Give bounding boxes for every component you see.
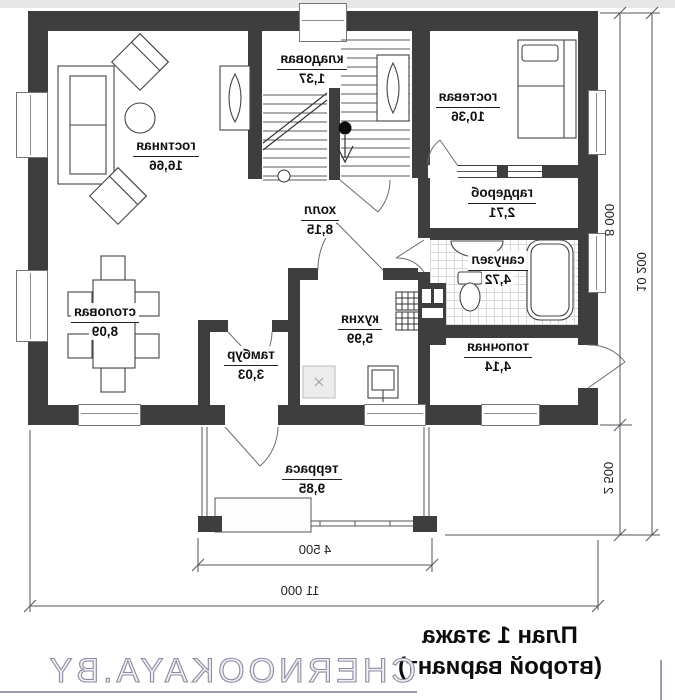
round-table: [125, 103, 155, 133]
room-label-dining-room: столовая 8,09: [57, 303, 153, 340]
dimension-extension-line: [660, 660, 662, 700]
stair-newel-post: [278, 170, 290, 182]
door-arc-boiler: [588, 345, 625, 388]
dimension-house-height: 8 000: [601, 190, 617, 250]
room-label-guest-room: гостевая 10,36: [420, 88, 516, 125]
dimension-terrace-height: 2 500: [600, 448, 616, 508]
watermark-text: CHERNOOKAYA.BY: [2, 652, 416, 691]
terrace-post-left: [198, 516, 222, 532]
door-arc-bathroom: [396, 240, 424, 272]
room-label-terrace: терраса 9,85: [264, 460, 360, 497]
stair-section-dot: [339, 122, 352, 135]
dimension-total-height: 10 200: [633, 242, 649, 302]
room-label-wardrobe: гардероб 2,71: [454, 184, 550, 221]
room-label-bathroom: санузел 4,72: [450, 251, 546, 288]
terrace-bench: [215, 498, 311, 532]
plan-title-line1: План 1 этажа: [378, 620, 622, 651]
room-label-storage: кладовая 1,37: [264, 50, 360, 87]
door-arc-guestroom: [428, 140, 458, 166]
room-label-kitchen: кухня 5,99: [312, 310, 408, 347]
room-label-boiler-room: топочная 4,14: [450, 338, 546, 375]
terrace-post-right: [413, 516, 437, 532]
armchair-1: [112, 34, 169, 91]
stair-stringer: [329, 88, 340, 180]
dimension-total-width: 11 000: [262, 583, 338, 599]
pillow: [522, 45, 558, 61]
floor-plan-canvas: гостиная 16,66 кладовая 1,37 гостевая 10…: [0, 0, 675, 700]
room-label-hall: холл 8,15: [272, 201, 368, 238]
living-room-furniture: [58, 34, 250, 225]
watermark-underline: [0, 691, 417, 693]
room-label-vestibule: тамбур 3,03: [203, 346, 299, 383]
dimension-terrace-width: 4 500: [285, 542, 345, 558]
room-label-living-room: гостиная 16,66: [118, 137, 214, 174]
